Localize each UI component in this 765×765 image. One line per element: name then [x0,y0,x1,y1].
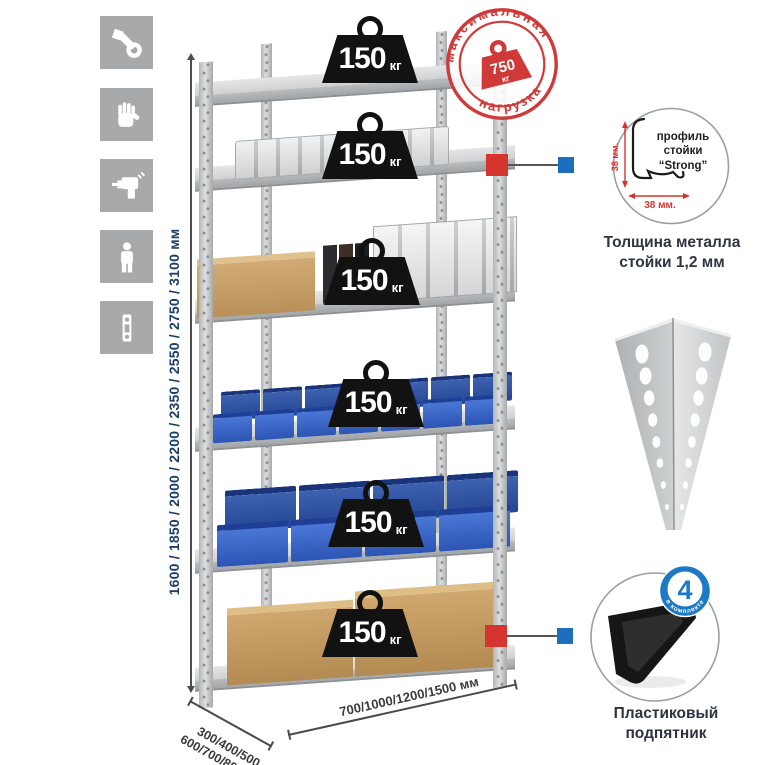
load-value: 150 [345,506,392,540]
quantity-value: 4 [677,575,692,605]
cardboard-box [197,251,315,318]
profile-label-2: стойки [664,145,703,157]
profile-vertical-dim: 38 мм. [611,143,620,171]
height-dimension-label: 1600 / 1850 / 2000 / 2200 / 2350 / 2550 … [166,229,182,596]
load-value: 150 [341,264,388,298]
load-badge-4: 150кг [328,360,424,427]
callout-connector-bottom [485,625,575,647]
load-unit: кг [390,154,402,169]
load-badge-3: 150кг [324,238,420,305]
icon-tile-perforated-post [100,301,153,354]
profile-label-1: профиль [657,131,710,143]
load-value: 150 [339,138,386,172]
load-value: 150 [345,386,392,420]
icon-tile-drill [100,159,153,212]
load-unit: кг [392,280,404,295]
load-badge-2: 150кг [322,112,418,179]
metal-thickness-caption: Толщина металла стойки 1,2 мм [596,233,748,273]
post-profile-detail: 38 мм. 38 мм. профиль стойки “Strong” [611,106,731,226]
icon-tile-person [100,230,153,283]
load-value: 150 [339,616,386,650]
red-marker [485,625,507,647]
profile-horizontal-dim: 38 мм. [644,200,676,211]
post-profile-diagram: 38 мм. 38 мм. профиль стойки “Strong” [611,106,731,226]
plastic-foot-caption: Пластиковый подпятник [596,704,736,744]
corner-post-image [602,312,747,542]
load-badge-6: 150кг [322,590,418,657]
connector-line [507,635,557,637]
shelf-post-front-right [493,41,507,688]
load-value: 150 [339,42,386,76]
corner-post-graphic [602,312,747,537]
load-badge-5: 150кг [328,480,424,547]
red-marker [486,154,508,176]
blue-marker [558,157,574,173]
infographic-canvas: 1600 / 1850 / 2000 / 2200 / 2350 / 2550 … [0,0,765,765]
gloves-icon [108,96,146,134]
perforated-post-icon [108,309,146,347]
callout-connector-top [486,154,576,176]
shelf-post-front-left [199,61,213,708]
load-unit: кг [390,58,402,73]
quantity-badge: 4 в комплекте [658,564,712,618]
drill-icon [108,167,146,205]
load-unit: кг [396,522,408,537]
icon-tile-wrench [100,16,153,69]
connector-line [508,164,558,166]
wrench-icon [108,24,146,62]
profile-label-3: “Strong” [659,160,708,172]
quantity-badge-graphic: 4 в комплекте [658,564,712,618]
load-unit: кг [396,402,408,417]
blue-marker [557,628,573,644]
icon-tile-gloves [100,88,153,141]
height-dimension-line [190,56,192,690]
person-icon [108,238,146,276]
load-badge-1: 150кг [322,16,418,83]
load-unit: кг [390,632,402,647]
